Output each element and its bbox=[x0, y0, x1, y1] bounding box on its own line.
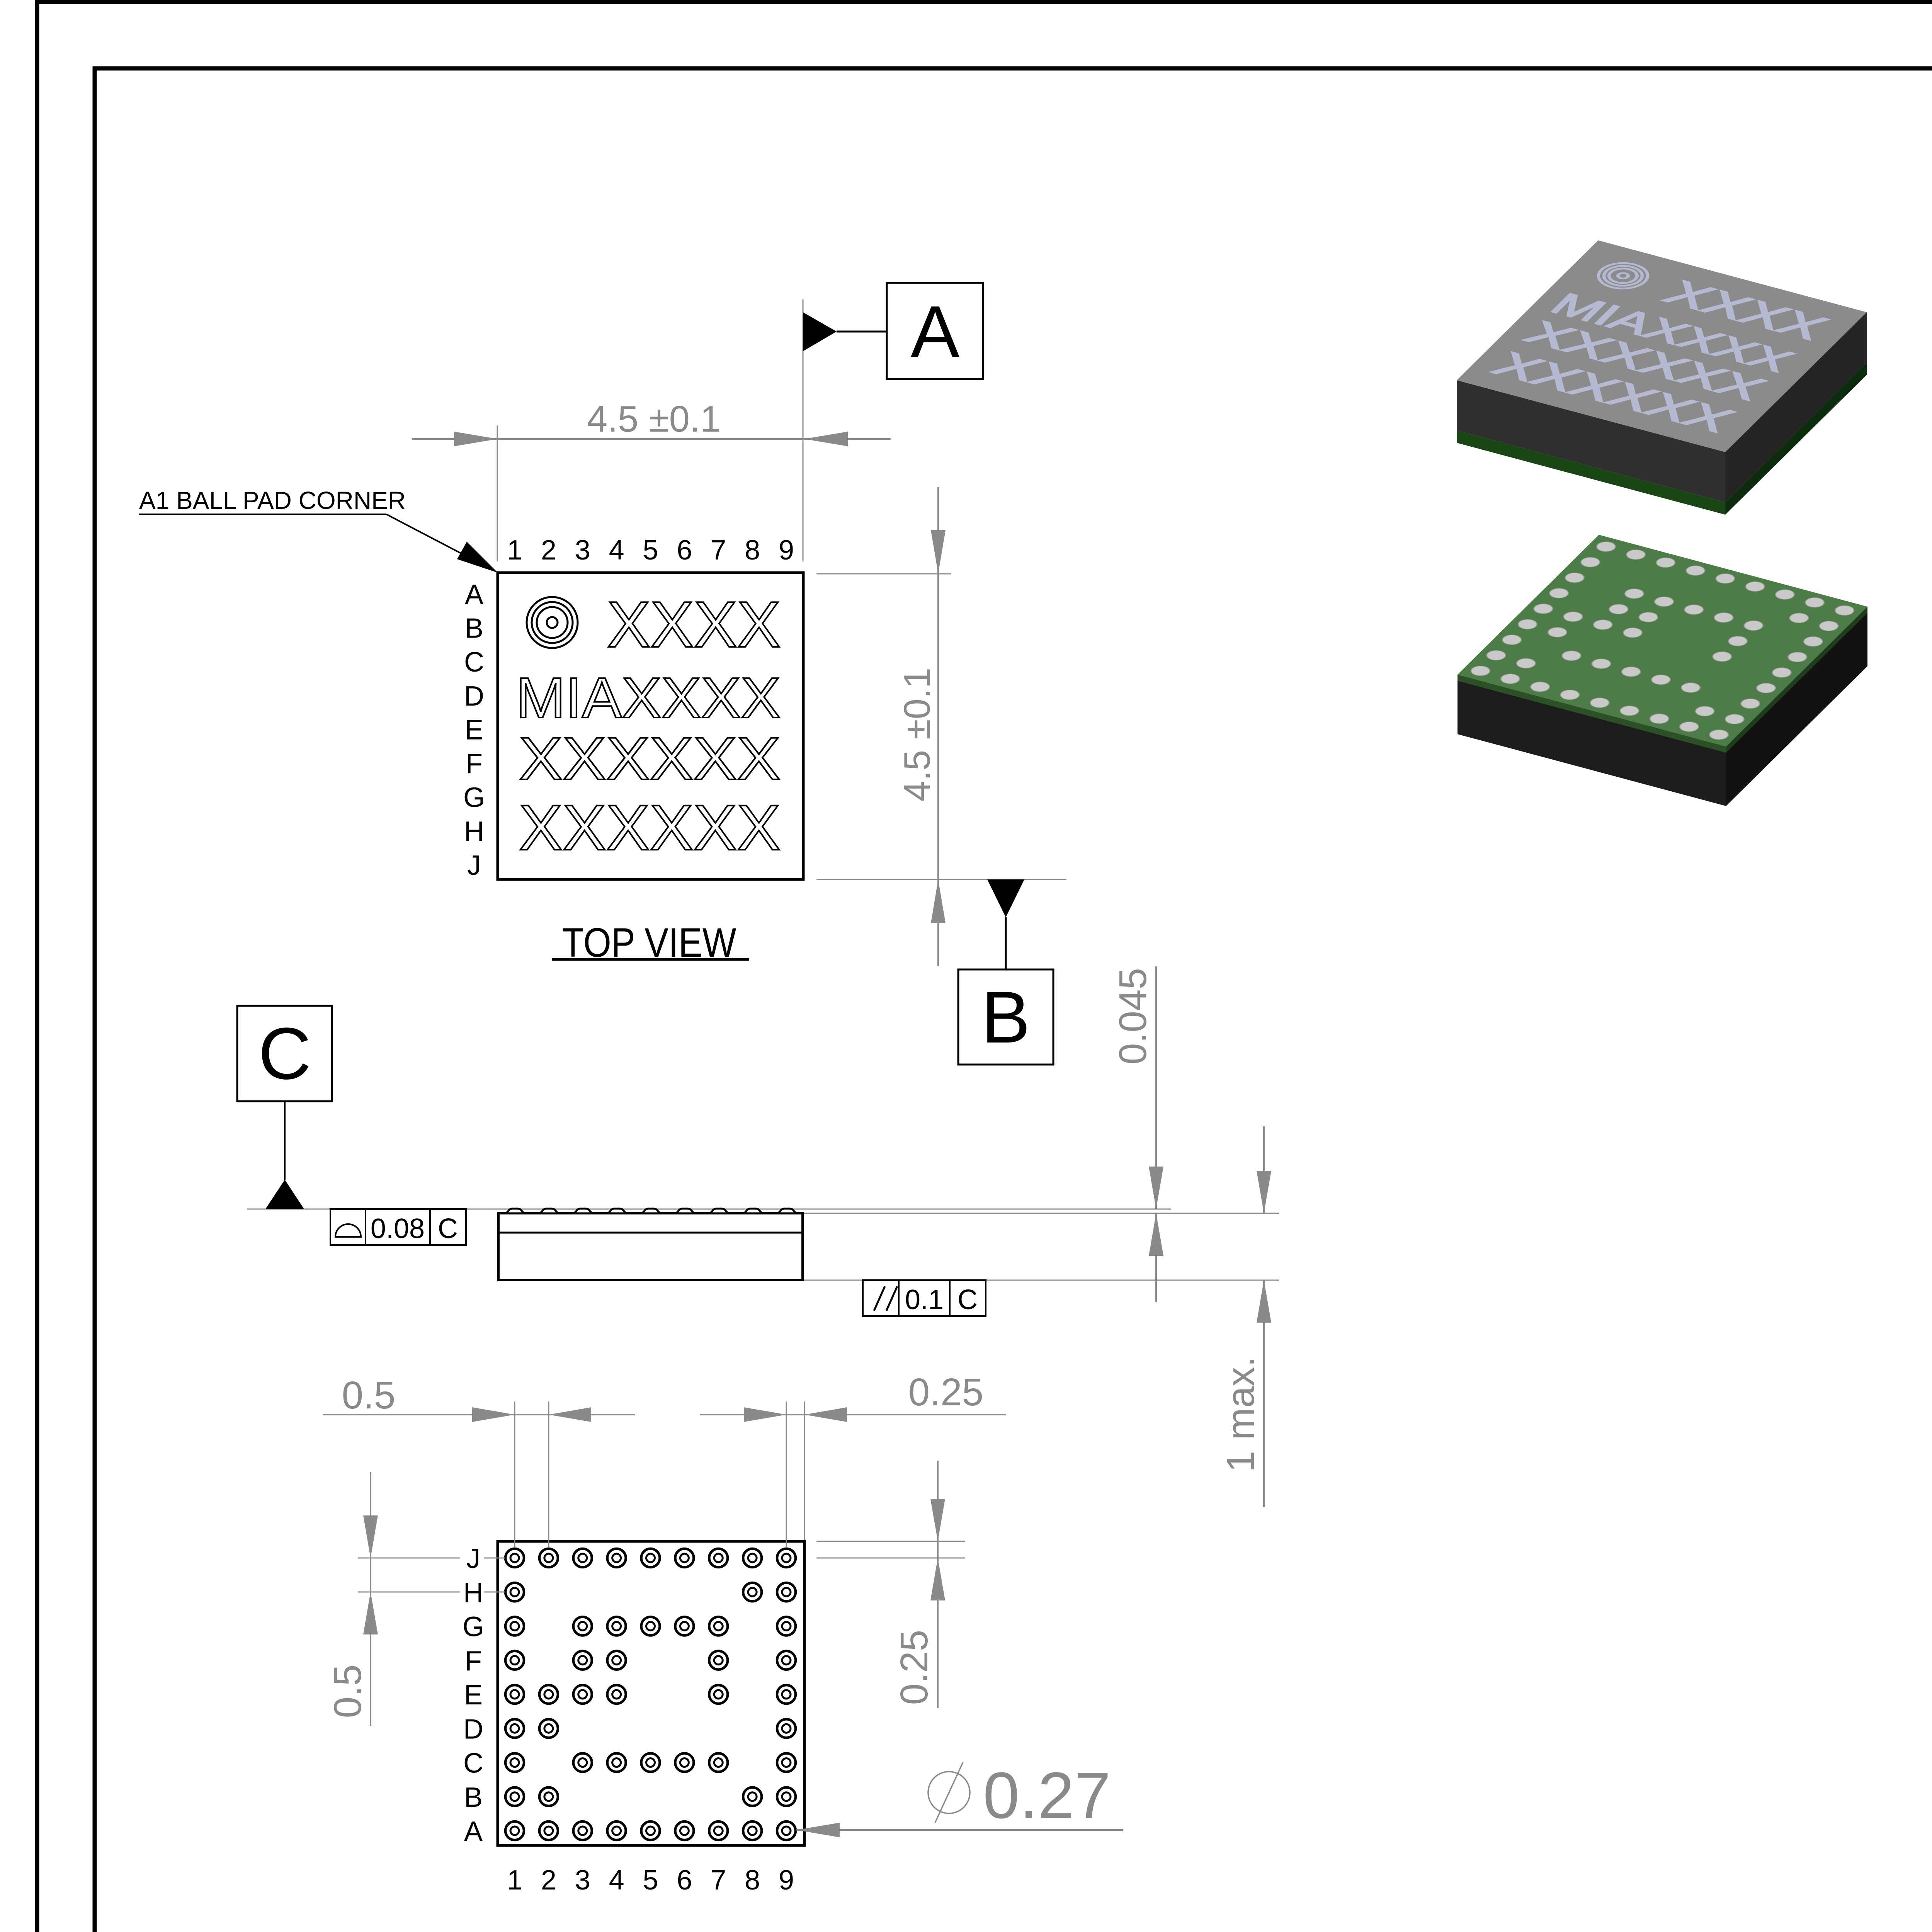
svg-text:A: A bbox=[911, 291, 960, 373]
svg-text:0.25: 0.25 bbox=[908, 1371, 984, 1414]
svg-text:A1 BALL PAD CORNER: A1 BALL PAD CORNER bbox=[139, 486, 406, 514]
svg-text:MIAXXXX: MIAXXXX bbox=[516, 666, 781, 730]
svg-text:H: H bbox=[464, 816, 484, 847]
svg-text:D: D bbox=[464, 681, 484, 712]
svg-text:3: 3 bbox=[575, 1865, 590, 1896]
svg-text:C: C bbox=[258, 1013, 311, 1095]
svg-text:1: 1 bbox=[507, 1865, 522, 1896]
svg-text:6: 6 bbox=[677, 535, 692, 566]
svg-text:8: 8 bbox=[745, 535, 760, 566]
svg-text:G: G bbox=[463, 1612, 484, 1643]
svg-text:0.5: 0.5 bbox=[342, 1374, 395, 1417]
svg-text:6: 6 bbox=[677, 1865, 692, 1896]
svg-text:XXXXXX: XXXXXX bbox=[519, 792, 781, 864]
svg-text:A: A bbox=[465, 579, 483, 610]
svg-text:0.25: 0.25 bbox=[893, 1630, 936, 1705]
svg-text:4.5 ±0.1: 4.5 ±0.1 bbox=[896, 668, 938, 801]
svg-text:4.5 ±0.1: 4.5 ±0.1 bbox=[587, 398, 721, 440]
svg-text:C: C bbox=[464, 647, 484, 678]
svg-text:XXXXXX: XXXXXX bbox=[519, 725, 781, 793]
svg-text:D: D bbox=[463, 1714, 483, 1745]
svg-text:0.045: 0.045 bbox=[1111, 968, 1155, 1065]
svg-text:9: 9 bbox=[779, 1865, 794, 1896]
svg-text:B: B bbox=[464, 1782, 483, 1813]
svg-text:XXXX: XXXX bbox=[607, 588, 781, 661]
svg-text:G: G bbox=[463, 782, 485, 813]
svg-text:J: J bbox=[466, 1543, 480, 1574]
svg-text:1 max.: 1 max. bbox=[1219, 1356, 1262, 1472]
svg-text:7: 7 bbox=[711, 535, 726, 566]
svg-text:3: 3 bbox=[575, 535, 590, 566]
svg-text:E: E bbox=[464, 1680, 483, 1711]
svg-text:0.5: 0.5 bbox=[326, 1664, 369, 1718]
svg-text:0.1: 0.1 bbox=[905, 1284, 944, 1315]
svg-text:1: 1 bbox=[507, 535, 522, 566]
svg-text:E: E bbox=[465, 714, 483, 745]
svg-text:B: B bbox=[465, 613, 483, 644]
svg-text:C: C bbox=[957, 1284, 978, 1315]
svg-text:8: 8 bbox=[745, 1865, 760, 1896]
svg-text:J: J bbox=[467, 850, 481, 881]
svg-text:A: A bbox=[464, 1816, 483, 1847]
svg-text:H: H bbox=[463, 1577, 483, 1608]
svg-text:9: 9 bbox=[779, 535, 794, 566]
svg-text:2: 2 bbox=[541, 1865, 556, 1896]
svg-text:F: F bbox=[465, 1646, 482, 1677]
svg-text:5: 5 bbox=[643, 1865, 658, 1896]
svg-text:4: 4 bbox=[609, 1865, 624, 1896]
svg-text:B: B bbox=[981, 976, 1031, 1058]
svg-text:5: 5 bbox=[643, 535, 658, 566]
svg-text:C: C bbox=[463, 1748, 483, 1779]
svg-text:7: 7 bbox=[711, 1865, 726, 1896]
svg-text:F: F bbox=[466, 748, 483, 779]
svg-text:0.08: 0.08 bbox=[371, 1213, 425, 1244]
svg-text:C: C bbox=[438, 1213, 458, 1244]
svg-text:0.27: 0.27 bbox=[983, 1759, 1111, 1832]
svg-text:2: 2 bbox=[541, 535, 556, 566]
svg-text:4: 4 bbox=[609, 535, 624, 566]
